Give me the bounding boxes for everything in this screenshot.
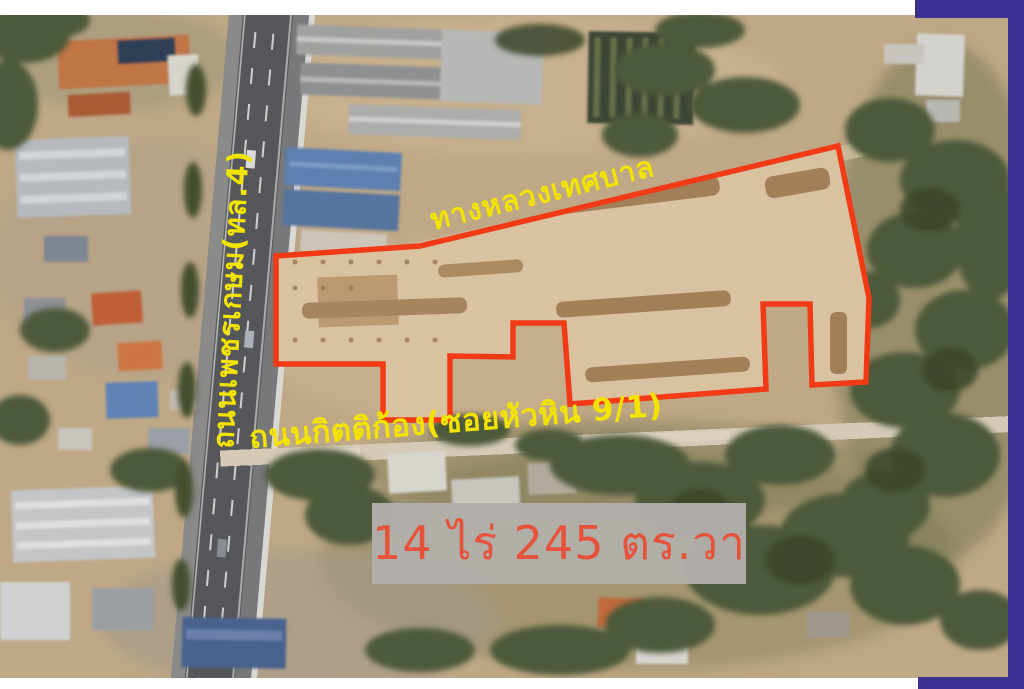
- frame-bottom-right: [918, 677, 1024, 689]
- area-label-box: 14 ไร่ 245 ตร.วา: [372, 503, 746, 584]
- frame-right: [1008, 0, 1024, 689]
- area-label: 14 ไร่ 245 ตร.วา: [372, 507, 746, 580]
- vehicle: [217, 539, 228, 558]
- land-listing-image: ถนนเพชรเกษม(ทล.4) ทางหลวงเทศบาล ถนนกิตติ…: [0, 0, 1024, 689]
